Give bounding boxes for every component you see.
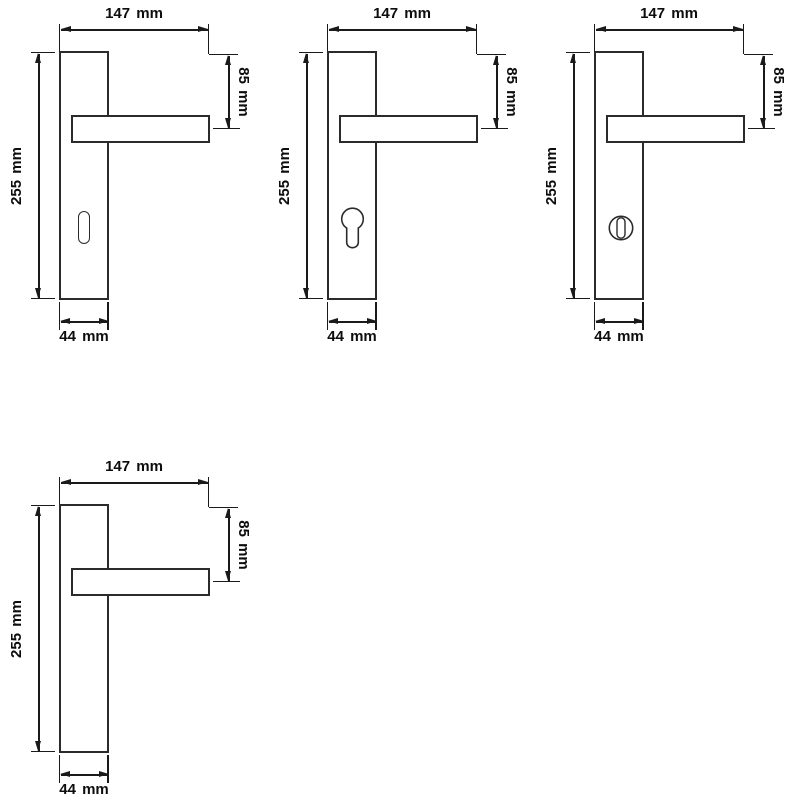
dim-arrow-down-icon: [35, 741, 41, 751]
dim-plate-height-label: 255 mm: [543, 136, 561, 216]
dim-overall-width-label: 147 mm: [594, 5, 744, 23]
dim-arrow-down-icon: [225, 571, 231, 581]
dim-plate-width-label: 44 mm: [34, 781, 134, 799]
extension-line: [59, 755, 60, 783]
dim-arrow-right-icon: [99, 318, 109, 324]
lever-handle: [339, 115, 478, 143]
extension-line: [642, 302, 643, 330]
dim-arrow-left-icon: [60, 318, 70, 324]
dimension-line: [228, 56, 229, 129]
dim-arrow-up-icon: [35, 53, 41, 63]
dim-arrow-down-icon: [760, 118, 766, 128]
dim-arrow-left-icon: [596, 26, 606, 32]
extension-line: [327, 302, 328, 330]
dim-arrow-right-icon: [99, 771, 109, 777]
dim-arrow-down-icon: [493, 118, 499, 128]
backplate: [327, 51, 377, 300]
dimension-line: [228, 509, 229, 582]
dimension-line: [306, 54, 307, 298]
wc-turn-icon: [606, 213, 636, 243]
dim-arrow-up-icon: [303, 53, 309, 63]
lever-handle: [71, 115, 210, 143]
dim-arrow-up-icon: [35, 506, 41, 516]
dim-arrow-left-icon: [329, 26, 339, 32]
drawing-blank-variant: 147 mm 255 mm 85 mm 44 mm: [0, 453, 260, 800]
drawing-keyhole-variant: 147 mm 255 mm 85 mm 44 mm: [0, 0, 260, 350]
dim-plate-height-label: 255 mm: [8, 589, 26, 669]
dim-arrow-right-icon: [733, 26, 743, 32]
dim-arrow-right-icon: [367, 318, 377, 324]
drawing-euro-cylinder-variant: 147 mm 255 mm 85 mm 44 mm: [268, 0, 528, 350]
dim-handle-offset-label: 85 mm: [769, 52, 787, 132]
dim-overall-width-label: 147 mm: [59, 458, 209, 476]
backplate: [594, 51, 644, 300]
keyhole-icon: [78, 211, 90, 244]
extension-line: [375, 302, 376, 330]
euro-cylinder-icon: [337, 205, 368, 251]
lever-handle: [606, 115, 745, 143]
dim-arrow-left-icon: [328, 318, 338, 324]
backplate: [59, 504, 109, 753]
dim-arrow-up-icon: [225, 55, 231, 65]
dimension-line: [596, 29, 743, 30]
lever-handle: [71, 568, 210, 596]
dimension-line: [61, 29, 208, 30]
dim-arrow-down-icon: [570, 288, 576, 298]
dim-handle-offset-label: 85 mm: [234, 505, 252, 585]
dim-arrow-up-icon: [225, 508, 231, 518]
dim-arrow-left-icon: [61, 26, 71, 32]
backplate: [59, 51, 109, 300]
dim-arrow-left-icon: [595, 318, 605, 324]
dimension-line: [329, 29, 476, 30]
extension-line: [594, 302, 595, 330]
dim-plate-width-label: 44 mm: [569, 328, 669, 346]
dim-plate-height-label: 255 mm: [8, 136, 26, 216]
dim-arrow-right-icon: [198, 479, 208, 485]
technical-drawing-canvas: 147 mm 255 mm 85 mm 44 mm 147 mm: [0, 0, 800, 800]
dim-arrow-up-icon: [760, 55, 766, 65]
extension-line: [107, 302, 108, 330]
dim-arrow-up-icon: [493, 55, 499, 65]
dimension-line: [573, 54, 574, 298]
dim-handle-offset-label: 85 mm: [234, 52, 252, 132]
dimension-line: [38, 54, 39, 298]
dim-arrow-left-icon: [61, 479, 71, 485]
dimension-line: [61, 482, 208, 483]
dim-overall-width-label: 147 mm: [59, 5, 209, 23]
dimension-line: [763, 56, 764, 129]
dim-arrow-left-icon: [60, 771, 70, 777]
dim-arrow-right-icon: [198, 26, 208, 32]
dim-arrow-right-icon: [634, 318, 644, 324]
dim-handle-offset-label: 85 mm: [502, 52, 520, 132]
dim-overall-width-label: 147 mm: [327, 5, 477, 23]
dimension-line: [38, 507, 39, 751]
dim-plate-height-label: 255 mm: [276, 136, 294, 216]
extension-line: [59, 302, 60, 330]
drawing-wc-turn-variant: 147 mm 255 mm 85 mm 44 mm: [535, 0, 795, 350]
dim-arrow-up-icon: [570, 53, 576, 63]
dim-arrow-down-icon: [303, 288, 309, 298]
extension-line: [107, 755, 108, 783]
dim-plate-width-label: 44 mm: [34, 328, 134, 346]
dim-arrow-down-icon: [35, 288, 41, 298]
dim-plate-width-label: 44 mm: [302, 328, 402, 346]
dimension-line: [496, 56, 497, 129]
dim-arrow-down-icon: [225, 118, 231, 128]
dim-arrow-right-icon: [466, 26, 476, 32]
